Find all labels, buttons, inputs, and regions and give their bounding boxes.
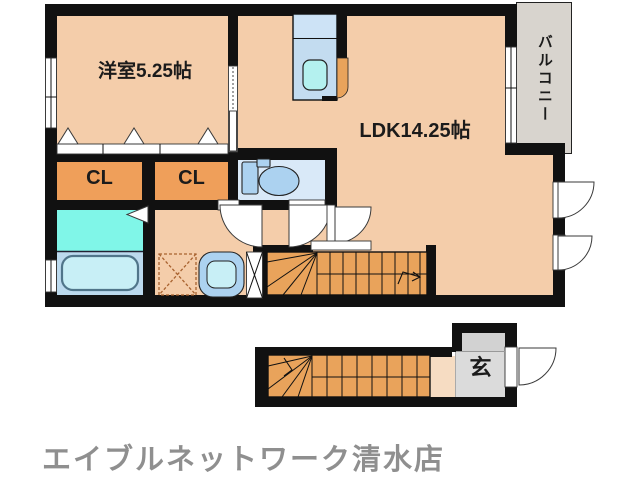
sliding-door-icon: [229, 66, 238, 152]
door-swing-icon: [127, 206, 148, 223]
floor-plan: 洋室5.25帖 LDK14.25帖 CL CL バルコニー 玄 エイブルネットワ…: [0, 0, 640, 480]
vanity-sink-icon: [199, 252, 244, 297]
toilet-icon: [242, 159, 299, 196]
balcony-label: バルコニー: [516, 8, 572, 150]
staircase-up-icon: [267, 252, 427, 295]
closet2-label: CL: [155, 168, 228, 189]
window-icon: [46, 58, 57, 128]
entrance-door-swing-icon: [519, 348, 556, 385]
closet1-label: CL: [57, 168, 142, 189]
entrance-label: 玄: [456, 356, 505, 379]
door-swing-icon: [558, 236, 592, 270]
western-room-label: 洋室5.25帖: [65, 62, 225, 82]
washing-machine-pan-icon: [159, 254, 196, 295]
window-icon: [506, 47, 517, 143]
accordion-door-icon: [247, 252, 263, 298]
kitchen-sink-icon: [293, 14, 348, 101]
bathtub-icon: [62, 256, 138, 290]
door-swing-icon: [558, 182, 594, 218]
door-leaf: [505, 347, 517, 387]
door-swing-icon: [335, 207, 371, 243]
staircase-up-icon: [268, 355, 430, 397]
ldk-label: LDK14.25帖: [335, 121, 495, 142]
window-icon: [46, 260, 57, 292]
door-leaf: [311, 241, 371, 250]
folding-closet-door-icon: [57, 128, 228, 154]
door-swing-icon: [220, 205, 262, 247]
brand-text: エイブルネットワーク清水店: [42, 436, 445, 478]
